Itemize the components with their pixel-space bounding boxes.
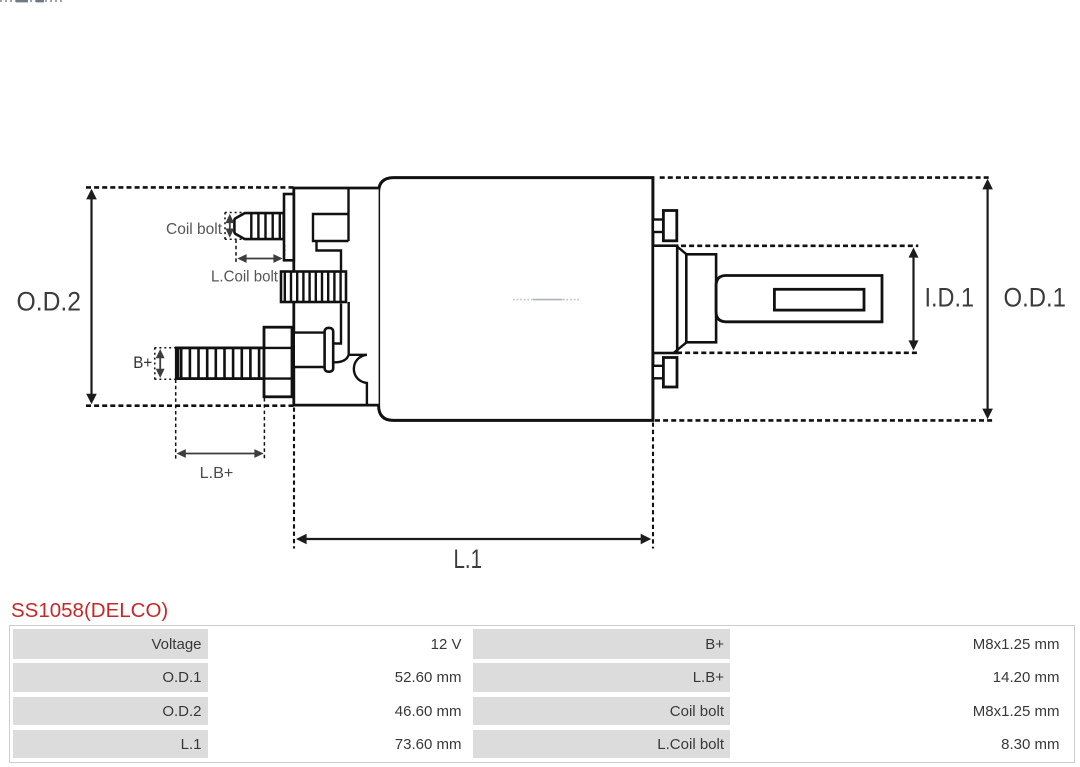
svg-text:O.D.1: O.D.1 <box>1004 282 1067 312</box>
svg-text:L.Coil bolt: L.Coil bolt <box>211 269 279 286</box>
svg-text:L.B+: L.B+ <box>200 465 234 482</box>
svg-text:L.1: L.1 <box>454 544 483 574</box>
svg-text:O.D.2: O.D.2 <box>17 287 82 317</box>
svg-text:B+: B+ <box>133 354 152 372</box>
svg-text:I.D.1: I.D.1 <box>925 282 975 312</box>
svg-text:Coil bolt: Coil bolt <box>166 221 223 238</box>
